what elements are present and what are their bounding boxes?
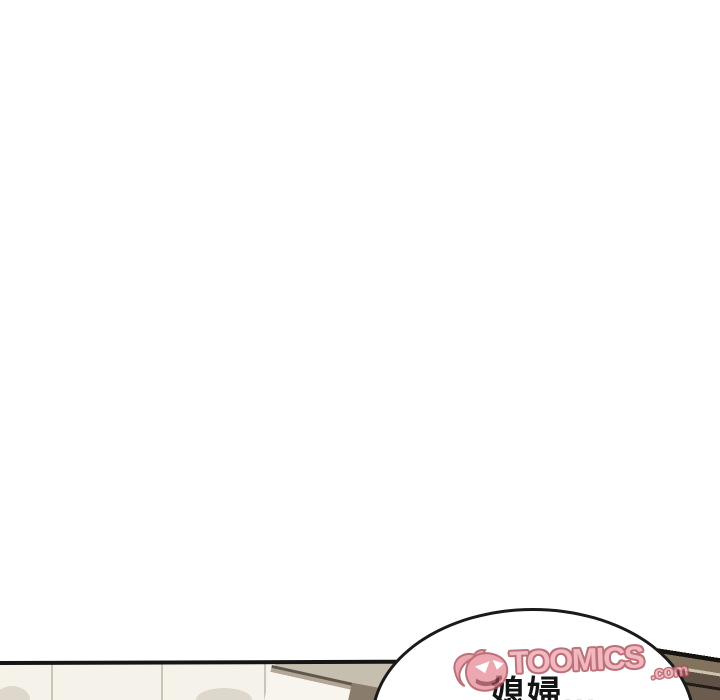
floor-shadow bbox=[196, 688, 252, 700]
cabinet-seam bbox=[161, 662, 163, 700]
speech-bubble-text: 媳婦... bbox=[491, 666, 597, 700]
floor-shadow bbox=[0, 686, 30, 700]
cabinet-seam bbox=[51, 662, 53, 700]
comic-page: 媳婦... TOOMICS .com bbox=[0, 0, 720, 700]
